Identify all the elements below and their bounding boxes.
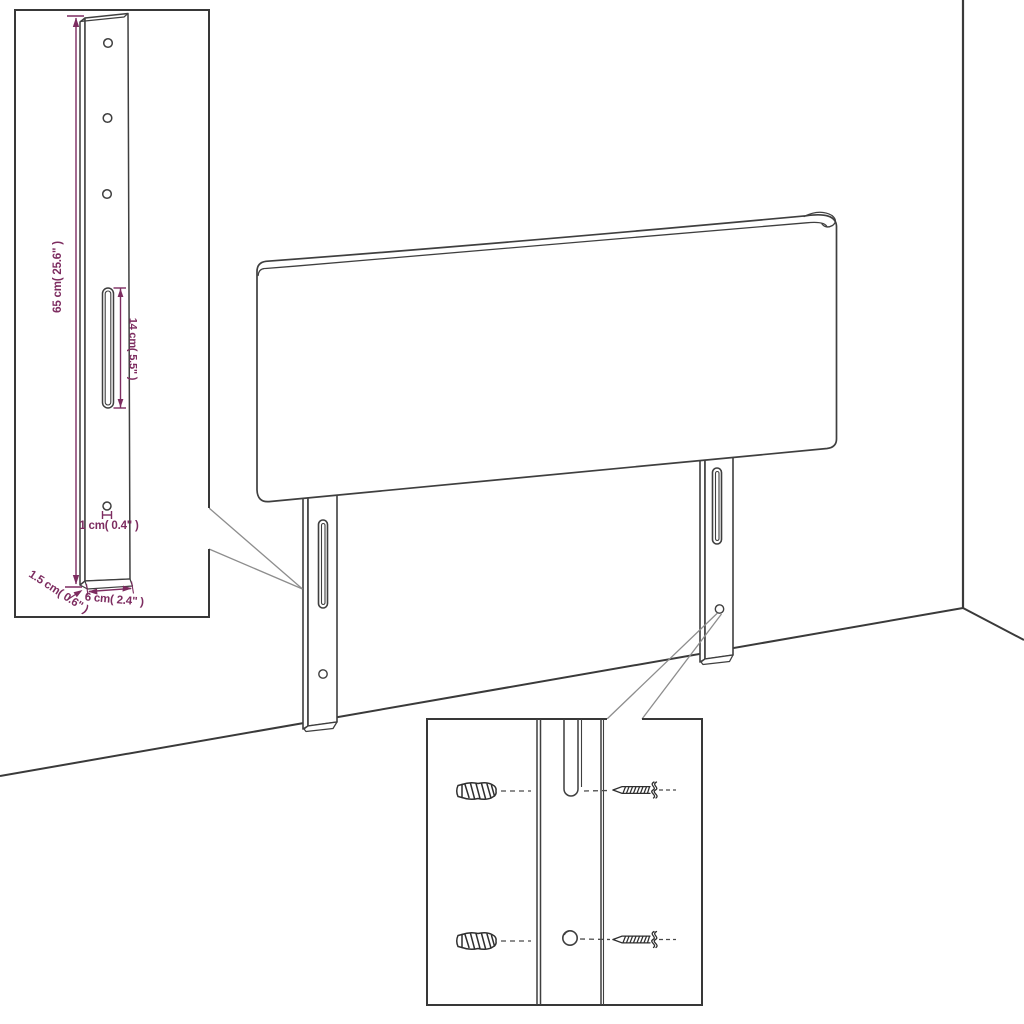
- dimension-label-slot-length: 14 cm( 5.5" ): [127, 318, 139, 381]
- mounting-detail-inset: [427, 719, 702, 1005]
- dimension-label-hole-diameter: 1 cm( 0.4" ): [79, 520, 139, 532]
- assembly-diagram: 65 cm( 25.6" ) 14 cm( 5.5" ) 1 cm( 0.4" …: [0, 0, 1024, 1024]
- bracket-detail-inset: 65 cm( 25.6" ) 14 cm( 5.5" ) 1 cm( 0.4" …: [15, 10, 209, 617]
- bracket-front-face: [85, 14, 130, 582]
- left-leg-front-face: [308, 494, 337, 726]
- bracket-drawing: [80, 14, 133, 590]
- assembly-diagram-page: 65 cm( 25.6" ) 14 cm( 5.5" ) 1 cm( 0.4" …: [0, 0, 1024, 1024]
- left-leg: [303, 494, 337, 732]
- right-leg: [700, 449, 733, 665]
- dashed-line: [584, 791, 610, 792]
- dimension-label-height: 65 cm( 25.6" ): [52, 241, 64, 313]
